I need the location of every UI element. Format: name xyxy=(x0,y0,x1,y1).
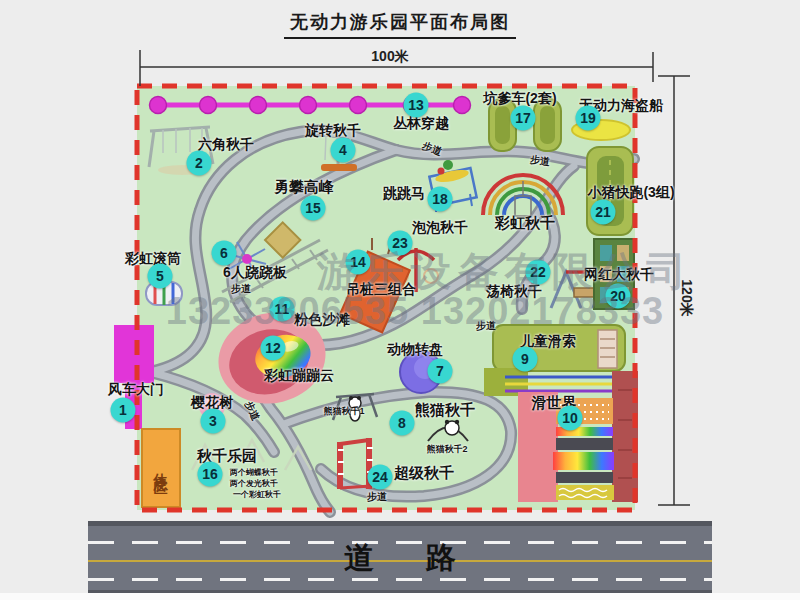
marker-14: 14 xyxy=(346,250,371,275)
walkway-label: 步道 xyxy=(476,319,496,333)
feature-label-22: 荡椅秋千 xyxy=(486,283,542,301)
feature-label-18: 跳跳马 xyxy=(383,185,425,203)
marker-21: 21 xyxy=(591,200,616,225)
marker-18: 18 xyxy=(428,187,453,212)
rest-area-label: 休息区 xyxy=(152,462,170,474)
panda-swing-1-label: 熊猫秋千1 xyxy=(323,405,364,418)
feature-label-11: 粉色沙滩 xyxy=(294,311,350,329)
feature-label-1: 风车大门 xyxy=(108,381,164,399)
feature-label-14: 吊桩三组合 xyxy=(346,281,416,299)
feature-label-20: 网红大秋千 xyxy=(584,266,654,284)
walkway-label: 步道 xyxy=(529,153,551,170)
marker-9: 9 xyxy=(513,347,538,372)
feature-label-12: 彩虹蹦蹦云 xyxy=(264,367,334,385)
marker-4: 4 xyxy=(331,138,356,163)
feature-label-6: 6人跷跷板 xyxy=(223,264,287,282)
marker-20: 20 xyxy=(606,284,631,309)
marker-15: 15 xyxy=(301,196,326,221)
marker-19: 19 xyxy=(576,106,601,131)
marker-8: 8 xyxy=(390,411,415,436)
marker-10: 10 xyxy=(558,406,583,431)
marker-5: 5 xyxy=(148,264,173,289)
marker-16: 16 xyxy=(198,462,223,487)
walkway-label: 步道 xyxy=(367,490,387,504)
marker-7: 7 xyxy=(428,359,453,384)
feature-label-2: 六角秋千 xyxy=(198,136,254,154)
walkway-label: 步道 xyxy=(231,282,251,296)
marker-6: 6 xyxy=(212,241,237,266)
swing-park-note-2: 两个发光秋千 xyxy=(230,478,278,489)
swing-park-note-3: 一个彩虹秋千 xyxy=(233,489,281,500)
dimension-height-label: 120米 xyxy=(677,275,695,320)
feature-label-7: 动物转盘 xyxy=(387,341,443,359)
feature-label-24: 超级秋千 xyxy=(394,464,454,483)
swing-park-note-1: 两个蝴蝶秋千 xyxy=(230,467,278,478)
marker-3: 3 xyxy=(201,409,226,434)
dimension-width-label: 100米 xyxy=(367,48,412,66)
marker-2: 2 xyxy=(187,151,212,176)
marker-12: 12 xyxy=(261,336,286,361)
page-title: 无动力游乐园平面布局图 xyxy=(284,10,516,39)
marker-13: 13 xyxy=(404,93,429,118)
marker-17: 17 xyxy=(511,106,536,131)
marker-24: 24 xyxy=(368,465,393,490)
marker-23: 23 xyxy=(388,231,413,256)
marker-1: 1 xyxy=(111,398,136,423)
feature-label-8: 熊猫秋千 xyxy=(415,401,475,420)
panda-swing-2-label: 熊猫秋千2 xyxy=(426,443,467,456)
page-bottom-strip xyxy=(0,593,800,600)
road: 道路 xyxy=(88,521,712,593)
feature-label-23: 泡泡秋千 xyxy=(412,219,468,237)
feature-label-13: 丛林穿越 xyxy=(393,115,449,133)
park-map-screenshot: 无动力游乐园平面布局图 xyxy=(0,0,800,600)
road-label: 道路 xyxy=(292,538,508,579)
marker-22: 22 xyxy=(526,260,551,285)
rainbow-swing-label: 彩虹秋千 xyxy=(495,214,555,233)
feature-label-4: 旋转秋千 xyxy=(305,122,361,140)
feature-label-15: 勇攀高峰 xyxy=(274,178,334,197)
marker-11: 11 xyxy=(270,297,295,322)
